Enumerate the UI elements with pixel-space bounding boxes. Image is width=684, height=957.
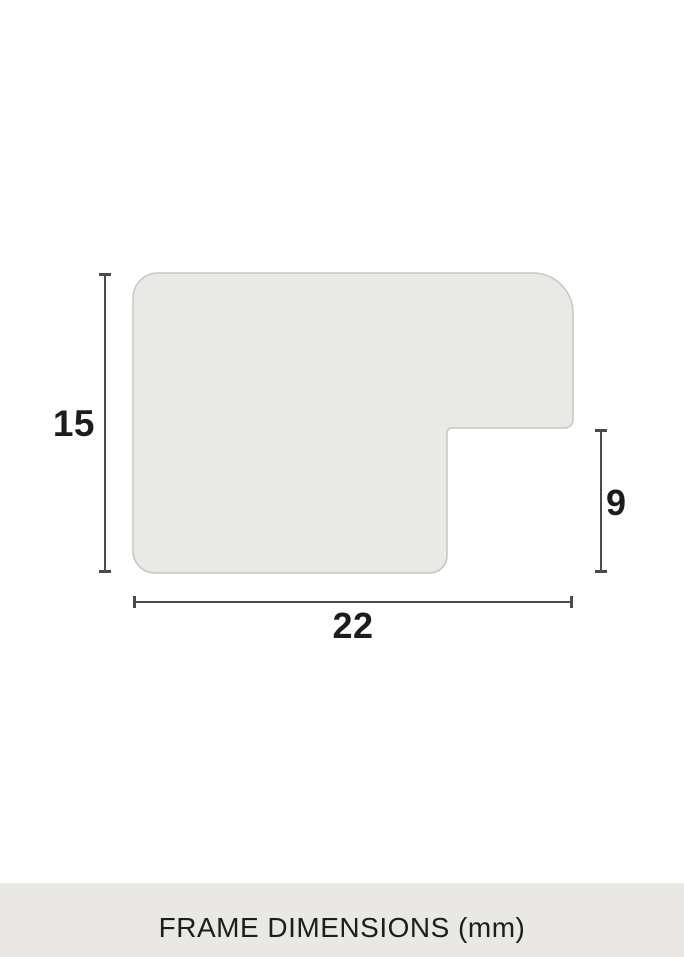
dimension-line	[600, 429, 602, 573]
dimension-line	[104, 273, 106, 573]
caption-text: FRAME DIMENSIONS (mm)	[159, 912, 526, 944]
frame-dimensions-figure: 15 9 22 FRAME DIMENSIONS (mm)	[0, 0, 684, 957]
height-dimension-label: 15	[35, 405, 95, 442]
rabbet-dimension-label: 9	[606, 485, 642, 521]
dimension-line	[133, 601, 573, 603]
dimension-tick	[99, 570, 111, 573]
width-dimension-label: 22	[303, 608, 403, 644]
frame-profile-shape	[133, 273, 573, 573]
caption-bar: FRAME DIMENSIONS (mm)	[0, 883, 684, 957]
dimension-tick	[595, 570, 607, 573]
height-dimension-line	[99, 273, 111, 573]
dimension-tick	[570, 596, 573, 608]
